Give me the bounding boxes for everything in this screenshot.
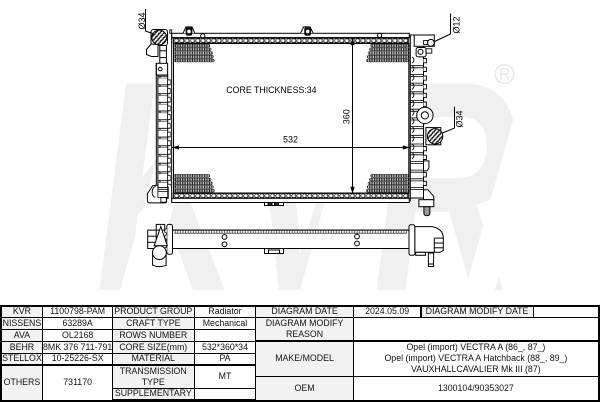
svg-text:Ø34: Ø34 [137, 12, 147, 29]
svg-text:CORE THICKNESS:34: CORE THICKNESS:34 [226, 85, 316, 95]
svg-text:360: 360 [342, 109, 352, 124]
svg-text:Ø34: Ø34 [455, 110, 465, 127]
svg-text:Ø12: Ø12 [452, 16, 462, 33]
svg-text:532: 532 [283, 134, 298, 144]
